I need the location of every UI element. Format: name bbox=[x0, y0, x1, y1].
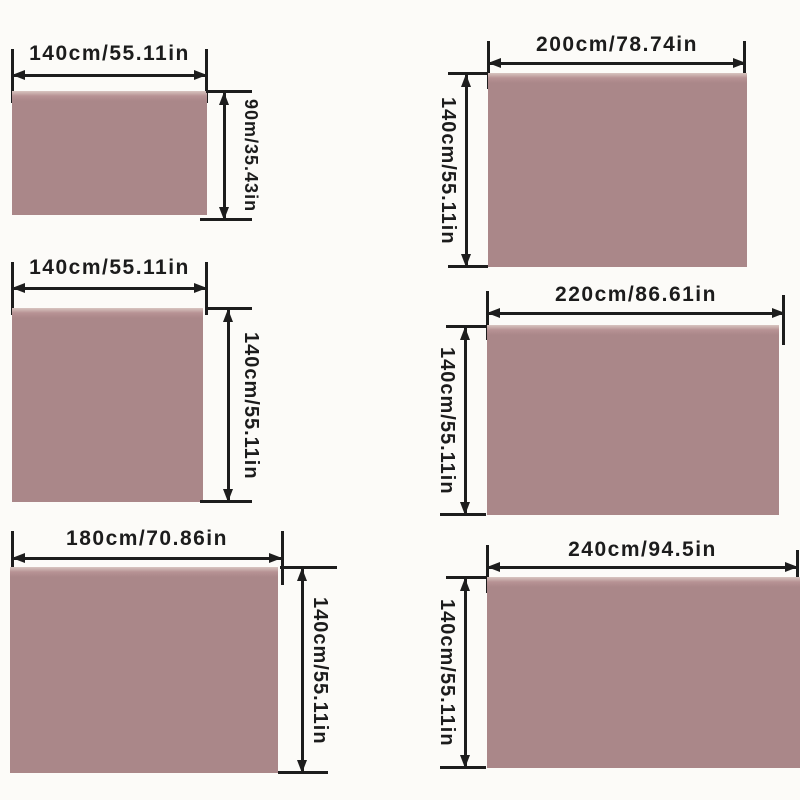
height-arrow bbox=[464, 579, 467, 767]
width-arrow-right-tick bbox=[782, 295, 785, 345]
width-arrow bbox=[489, 62, 745, 65]
width-dimension-label: 240cm/94.5in bbox=[488, 538, 797, 562]
width-dimension-label: 180cm/70.86in bbox=[13, 527, 281, 551]
fabric-swatch bbox=[10, 567, 278, 773]
width-dimension-label: 220cm/86.61in bbox=[488, 283, 784, 307]
width-dimension-label: 200cm/78.74in bbox=[489, 33, 745, 57]
width-dimension-label: 140cm/55.11in bbox=[13, 42, 206, 66]
width-arrow bbox=[13, 287, 206, 290]
height-dimension-label: 140cm/55.11in bbox=[431, 75, 459, 266]
fabric-swatch bbox=[12, 308, 203, 502]
height-dimension-label: 140cm/55.11in bbox=[234, 310, 262, 501]
width-arrow bbox=[13, 557, 281, 560]
width-arrow bbox=[488, 566, 797, 569]
width-arrow bbox=[488, 312, 784, 315]
height-arrow bbox=[464, 328, 467, 514]
fabric-swatch bbox=[488, 73, 747, 267]
width-dimension-label: 140cm/55.11in bbox=[13, 256, 206, 280]
width-arrow-right-tick bbox=[281, 531, 284, 585]
height-dimension-label: 140cm/55.11in bbox=[430, 328, 458, 514]
height-dimension-label: 140cm/55.11in bbox=[303, 569, 331, 772]
height-arrow bbox=[465, 75, 468, 266]
fabric-swatch bbox=[12, 91, 207, 215]
height-arrow bbox=[227, 310, 230, 501]
height-arrow bbox=[223, 93, 226, 219]
width-arrow bbox=[13, 74, 206, 77]
height-dimension-label: 90m/35.43in bbox=[233, 92, 261, 220]
fabric-swatch bbox=[487, 577, 800, 768]
fabric-swatch bbox=[487, 325, 779, 515]
size-chart: 140cm/55.11in 90m/35.43in 140cm/55.11in … bbox=[0, 0, 800, 800]
height-dimension-label: 140cm/55.11in bbox=[430, 579, 458, 767]
